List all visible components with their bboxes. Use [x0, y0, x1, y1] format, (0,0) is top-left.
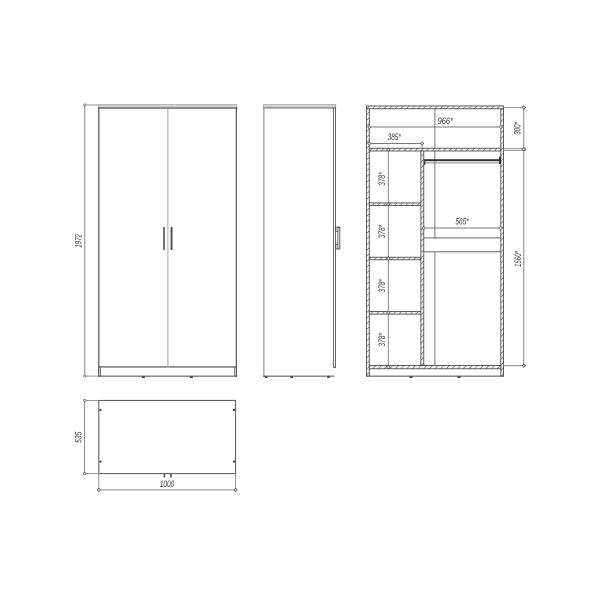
- svg-text:535: 535: [73, 431, 83, 443]
- svg-text:1972: 1972: [74, 234, 84, 247]
- svg-text:378*: 378*: [377, 172, 387, 186]
- svg-text:378*: 378*: [377, 224, 387, 238]
- svg-text:565*: 565*: [455, 216, 469, 226]
- svg-text:385*: 385*: [388, 132, 402, 142]
- svg-text:1000: 1000: [160, 479, 175, 489]
- svg-text:378*: 378*: [377, 333, 387, 347]
- svg-text:966*: 966*: [438, 116, 454, 126]
- svg-text:300*: 300*: [512, 122, 522, 135]
- svg-text:1560*: 1560*: [513, 251, 523, 267]
- svg-text:378*: 378*: [377, 279, 387, 293]
